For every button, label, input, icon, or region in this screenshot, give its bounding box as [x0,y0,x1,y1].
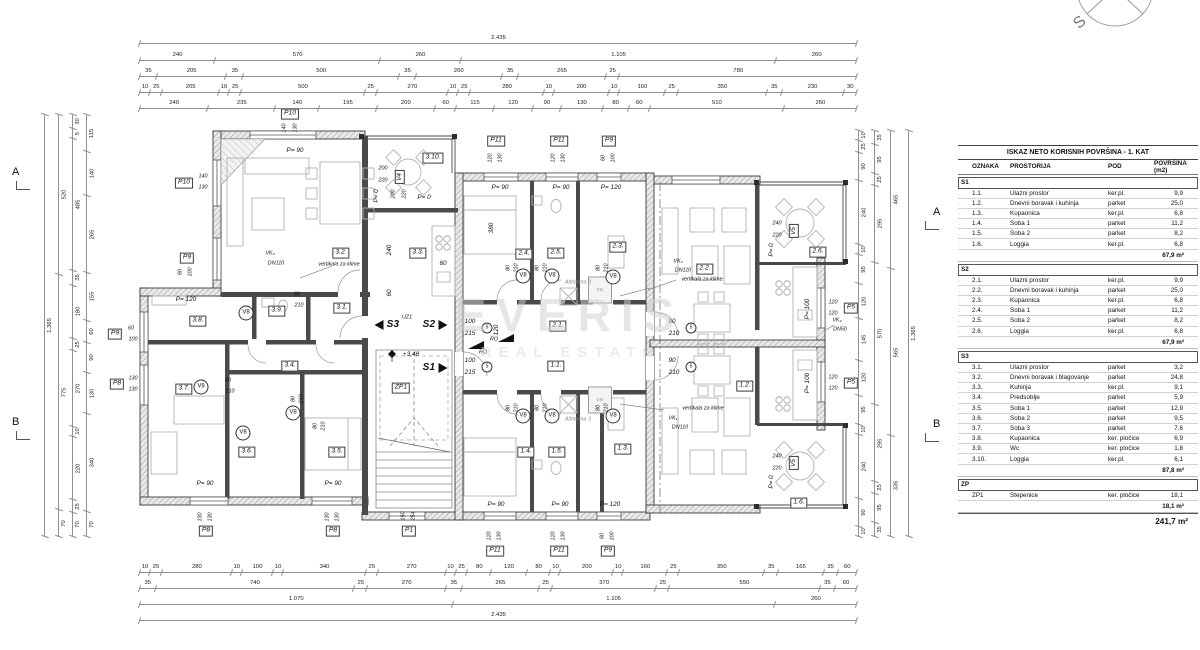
section-marker-b-right: B [933,418,940,430]
table-cell: 3.1. [972,364,1008,371]
table-row: .2.5.Soba 2parket8,2 [958,316,1198,326]
dim-80: 80 [596,265,601,271]
dim-80: 80 [291,396,296,402]
table-row: .3.1.Ulazni prostorparket3,2 [958,363,1198,373]
door-type-circle: 5 [482,323,493,334]
door-type-circle: 5 [686,362,697,373]
dn50-label: DN50 [833,327,847,332]
table-cell: . [959,445,970,452]
dim-140: 140 [199,174,208,179]
table-cell: parket [1108,220,1152,227]
table-cell: . [959,230,970,237]
dim-segment: 1.365 [44,115,57,537]
vent-marker-v8: V8 [194,380,209,395]
table-cell: parket [1108,364,1152,371]
dim-130: 130 [561,532,566,541]
floor-plan-sheet: S EVERIS REAL ESTATE 2.435 2405702601.10… [0,0,1200,650]
dim-segment: 130 [86,373,99,414]
dim-60: 60 [128,326,134,331]
dim-segment: 35 [767,80,782,93]
window-marker-p5-right1: P5 [844,303,858,314]
dim-segment: 220 [72,437,85,500]
table-cell: 1.2. [972,200,1008,207]
vent-marker-v8: V8 [239,306,254,321]
stair-mark-s2: S2 [423,320,436,330]
dim-60: 60 [439,261,446,267]
window-marker-p10-left: P10 [175,178,193,189]
table-cell: Loggia [1010,328,1106,335]
table-cell: . [959,384,970,391]
room-label-2-5: 2.5. [547,248,564,259]
table-cell: 7,6 [1154,425,1197,432]
dim-120: 120 [829,300,838,305]
dim-segment: 520 [58,115,71,275]
dim-segment: 80 [527,560,551,573]
door-dim-100: 100 [465,319,476,325]
table-cell: ker.pl. [1108,241,1152,248]
dim-80: 80 [535,405,540,411]
table-cell: 24,8 [1154,374,1197,381]
vertikala-label: vertikala za klime [318,262,359,267]
table-cell: Soba 1 [1010,220,1106,227]
table-cell: 11,2 [1154,307,1197,314]
room-label-1-2: 1.2. [736,381,753,392]
dim-254: 254 [411,512,416,521]
vertikala-label: vertikala za klime [681,277,722,282]
table-cell: 6,8 [1154,210,1197,217]
table-cell: parket [1108,287,1152,294]
dim-segment: 160 [619,80,665,93]
dim-120: 120 [551,154,556,163]
dim-segment: 200 [554,80,609,93]
table-cell: 9,5 [1154,415,1197,422]
dim-segment: 485 [72,139,85,271]
parapet-label: P= 100 [805,299,811,319]
dim-chain-right-1: 102590240109512014512095102409010 [858,131,871,537]
dim-segment: 1.365 [908,131,921,537]
table-cell: 3.10. [972,456,1008,463]
table-cell: . [959,328,970,335]
table-cell: Wc [1010,445,1106,452]
dim-200: 200 [379,166,388,171]
dim-segment: 140 [86,152,99,196]
dim-210: 210 [514,264,519,273]
table-row: .1.2.Dnevni boravak i kuhinjaparket25,0 [958,199,1198,209]
dim-segment: 25 [539,576,552,589]
dim-segment: 70 [72,513,85,537]
dim-segment: 780 [619,64,857,77]
table-cell: 2.3. [972,297,1008,304]
parapet-label: P= 120 [176,297,196,303]
dim-130: 130 [199,185,208,190]
dim-segment: 240 [858,435,871,500]
dim-segment: 95 [858,255,871,284]
room-label-3-8: 3.8. [189,316,206,327]
table-cell: 6,8 [1154,241,1197,248]
door-dim-100: 100 [465,358,476,364]
dim-segment: 740 [156,576,355,589]
table-row: .3.10.Loggiaker.pl.6,1 [958,454,1198,464]
dim-segment: 205 [157,64,227,77]
dim-80: 80 [535,265,540,271]
vk1-label: VK₁ [669,416,678,421]
dim-130: 130 [335,513,340,522]
table-cell: . [959,200,970,207]
dim-segment: 145 [858,319,871,360]
table-cell: 6,1 [1154,456,1197,463]
table-cell: 1.6. [972,241,1008,248]
table-cell: 3.5. [972,405,1008,412]
table-cell: 1.5. [972,230,1008,237]
table-cell: Loggia [1010,241,1106,248]
dim-130: 130 [498,154,503,163]
dim-segment: 35 [824,560,838,573]
dim-210: 210 [604,404,609,413]
table-subtotal: 87,8 m² [958,465,1198,477]
stair-arrow-icon [375,320,384,330]
dim-chain-top-4: 1025205102550025270102528010200101602535… [140,80,857,93]
dim-segment: 60 [435,96,456,109]
room-label-1-6: 1.6. [790,498,807,509]
vent-marker-v8: V8 [286,406,301,421]
dim-segment: 230 [782,80,844,93]
window-marker-p10-top: P10 [281,109,299,120]
table-cell: Kupaonica [1010,210,1106,217]
dim-segment: 165 [778,560,823,573]
table-total: 241,7 m² [958,513,1198,529]
table-cell: . [959,277,970,284]
door-dim-90: 90 [668,319,675,325]
dim-60: 60 [387,289,393,296]
dim-segment: 265 [462,576,540,589]
table-cell: ker. pločice [1108,435,1152,442]
table-cell: Dnevni boravak i kuhinja [1010,200,1106,207]
dim-segment: 340 [283,560,366,573]
dim-segment: 130 [561,96,602,109]
vertikala-label: vertikala za klime [682,406,723,411]
table-cell: 2.5. [972,317,1008,324]
dim-130: 130 [497,532,502,541]
table-row: .1.5.Soba 2parket8,2 [958,229,1198,239]
table-row: .2.1.Ulazni prostorker.pl.9,9 [958,276,1198,286]
dim-segment: 60 [838,560,857,573]
dim-segment: 265 [518,64,605,77]
table-cell: Soba 3 [1010,425,1106,432]
dim-segment: 35 [226,64,243,77]
room-label-1-4: 1.4. [517,447,534,458]
dim-220: 220 [402,190,407,199]
dim-segment: 240 [140,96,208,109]
dim-chain-bottom-2: 35740252703526525370255503560 [140,576,857,589]
dim-segment: 35 [874,523,887,537]
room-label-1-5: 1.5. [548,447,565,458]
table-cell: . [959,405,970,412]
window-marker-p8-bot2: P8 [326,526,340,537]
table-cell: parket [1108,200,1152,207]
dim-segment: 500 [241,80,364,93]
window-marker-p8-bot1: P8 [199,526,213,537]
section-marker-b-right-tick [925,433,939,442]
uz1-label: UZ1 [402,315,412,320]
dim-60: 60 [601,155,606,161]
door-type-circle: 5 [482,362,493,373]
parapet-label: P= 0 [417,195,430,201]
dim-120: 120 [829,311,838,316]
table-cell: 3.4. [972,394,1008,401]
dim-chain-right-2: 359525295570295259535 [874,131,887,537]
dim-100: 100 [610,532,615,541]
table-cell: 25,0 [1154,287,1197,294]
section-marker-b-left: B [12,416,19,428]
ro-label: RO [490,337,498,342]
dim-segment: 25 [366,560,378,573]
dim-220: 220 [773,233,782,238]
door-dim-215: 215 [465,370,476,376]
dim-chain-left-4: 115140265155609013034070 [86,115,99,537]
table-cell: . [959,364,970,371]
dim-380: 380 [489,223,495,234]
dim-segment: 570 [874,263,887,406]
dim-segment: 270 [367,576,446,589]
table-subtotal: 67,9 m² [958,250,1198,262]
table-cell: 3,2 [1154,364,1197,371]
dim-chain-left-2: 52077570 [58,115,71,537]
table-row: .1.3.Kupaonicaker.pl.6,8 [958,209,1198,219]
room-label-2-3: 2.3. [609,242,626,253]
window-marker-p9-top: P9 [602,136,616,147]
dim-chain-bottom-3: 1.0701.105260 [140,592,857,605]
table-subtotal: 67,9 m² [958,337,1198,349]
dim-120: 120 [829,386,838,391]
dim-segment: 70 [86,512,99,537]
table-cell: . [959,220,970,227]
table-row: .3.5.Soba 1parket12,9 [958,404,1198,414]
dim-segment: 90 [86,343,99,373]
parapet-label: P= 0 [769,475,775,488]
parapet-label: P= 90 [325,481,342,487]
table-cell: Loggia [1010,456,1106,463]
dim-120: 120 [488,154,493,163]
dim-210: 210 [299,395,304,404]
dim-segment: 35 [820,576,836,589]
dim-130: 130 [293,124,298,133]
table-cell: 18,1 [1154,492,1197,499]
table-cell: ZP1 [972,492,1008,499]
dim-segment: 120 [858,361,871,396]
window-marker-p11-bot2: P11 [550,546,568,557]
table-cell: Kuhinja [1010,384,1106,391]
window-marker-p9-bot: P9 [601,546,615,557]
vent-marker-v8: V8 [236,426,251,441]
table-cell: Soba 2 [1010,230,1106,237]
dim-segment: 10 [446,560,456,573]
dim-segment: 120 [494,96,533,109]
dim-segment: 295 [874,186,887,263]
table-row: .2.4.Soba 1parket11,2 [958,306,1198,316]
table-header-cell: PROSTORIJA [1010,163,1106,170]
level-label: +3,48 [403,352,419,358]
window-marker-p5-right2: P5 [844,378,858,389]
door-dim-215: 215 [465,331,476,337]
dim-segment: 30 [72,115,85,129]
table-cell: ker. pločice [1108,445,1152,452]
table-cell: ker.pl. [1108,277,1152,284]
dim-segment: 35 [446,576,462,589]
dim-segment: 25 [665,80,677,93]
table-cell: ker.pl. [1108,190,1152,197]
room-label-1-1: 1.1. [547,361,564,372]
dim-segment: 95 [874,494,887,523]
dim-chain-bottom-4: 2.435 [140,608,857,621]
dn110-label: DN110 [268,261,284,266]
dim-segment: 500 [243,64,399,77]
table-cell: ker.pl. [1108,297,1152,304]
dim-segment: 25 [365,80,377,93]
table-cell: 2.6. [972,328,1008,335]
table-cell: 9,9 [1154,190,1197,197]
dim-segment: 205 [162,80,218,93]
vk3-label: VK₃ [265,251,274,256]
dim-210: 210 [604,264,609,273]
dim-segment: 195 [319,96,376,109]
dim-segment: 260 [784,96,857,109]
table-cell: 6,8 [1154,328,1197,335]
table-cell: parket [1108,405,1152,412]
table-cell: 8,2 [1154,317,1197,324]
table-section-band: S1 [958,177,1198,189]
dim-segment: 200 [377,96,436,109]
dim-segment: 25 [874,482,887,494]
dim-chain-top-5: 24023514019520060115120901308060510260 [140,96,857,109]
table-cell: 12,9 [1154,405,1197,412]
dim-120: 120 [829,375,838,380]
table-row: .2.2.Dnevni boravak i kuhinjaparket25,0 [958,286,1198,296]
table-section-band: S2 [958,264,1198,276]
table-cell: parket [1108,230,1152,237]
table-cell: 11,2 [1154,220,1197,227]
table-cell: 2.1. [972,277,1008,284]
dim-120: 120 [551,532,556,541]
table-cell: ker.pl. [1108,384,1152,391]
window-marker-p9-left1: P9 [180,253,194,264]
dim-chain-right-4: 1.365 [908,131,921,537]
table-cell: Ulazni prostor [1010,190,1106,197]
table-cell: parket [1108,317,1152,324]
room-label-2-1: 2.1. [549,321,566,332]
table-row: .ZP1Stepeniceker. pločice18,1 [958,491,1198,501]
room-label-3-2: 3.2. [332,248,349,259]
table-cell: 1,8 [1154,445,1197,452]
dim-100: 100 [129,337,138,342]
parapet-label: P= 0 [769,243,775,256]
table-cell: 3.9. [972,445,1008,452]
table-cell: 3.2. [972,374,1008,381]
dim-segment: 80 [467,560,491,573]
table-cell: Dnevni boravak i kuhinja [1010,287,1106,294]
dim-130: 130 [561,154,566,163]
table-header-cell: OZNAKA [972,163,1008,170]
dim-segment: 100 [242,560,273,573]
dim-segment: 95 [874,145,887,174]
dim-segment: 265 [86,196,99,274]
dim-210: 210 [543,264,548,273]
dim-segment: 95 [858,396,871,425]
table-cell: ker.pl. [1108,456,1152,463]
table-cell: parket [1108,425,1152,432]
table-cell: . [959,374,970,381]
dim-segment: 30 [844,80,857,93]
room-label-3-10: 3.10. [422,153,443,164]
table-row: .2.6.Loggiaker.pl.6,8 [958,327,1198,337]
door-dim-210: 210 [669,331,680,337]
dim-80: 80 [294,292,300,297]
dim-chain-top-2: 2405702601.105260 [140,48,857,61]
north-compass-icon [1055,0,1185,55]
stair-mark-s3: S3 [387,320,400,330]
dim-segment: 235 [208,96,275,109]
table-cell: 2.4. [972,307,1008,314]
dim-segment: 35 [140,576,156,589]
table-cell: Predsoblje [1010,394,1106,401]
dim-segment: 280 [470,80,543,93]
table-cell: parket [1108,307,1152,314]
dim-210: 210 [514,404,519,413]
table-cell: 3.7. [972,425,1008,432]
dim-segment: 35 [874,131,887,145]
dim-segment: 115 [86,115,99,152]
dim-130: 130 [208,513,213,522]
dim-chain-left-1: 1.365 [44,115,57,537]
dim-240: 240 [773,221,782,226]
dim-segment: 120 [858,284,871,319]
dim-segment: 270 [377,80,448,93]
table-row: .3.8.Kupaonicaker. pločice6,9 [958,434,1198,444]
table-cell: 3.8. [972,435,1008,442]
table-cell: Ulazni prostor [1010,277,1106,284]
room-label-2-4: 2.4. [515,249,532,260]
stair-arrow-icon [439,320,448,330]
table-header-cell: POD [1108,163,1152,170]
table-cell: . [959,492,970,499]
dim-140: 140 [282,124,287,133]
table-cell: Soba 1 [1010,307,1106,314]
dim-segment: 2.435 [140,608,857,621]
table-header-row: OZNAKAPROSTORIJAPODPOVRŠINA (m2) [958,160,1198,175]
window-marker-p11-top2: P11 [550,136,568,147]
dim-220: 220 [773,466,782,471]
parapet-label: P= 120 [601,185,621,191]
table-row: .1.6.Loggiaker.pl.6,8 [958,239,1198,249]
dn110-label: DN110 [672,425,688,430]
dim-210: 210 [295,303,304,308]
room-label-2-2: 2.2. [696,264,713,275]
dim-120: 120 [487,532,492,541]
dim-segment: 350 [679,560,764,573]
dim-segment: 115 [456,96,493,109]
altherma-label: Altherma 3 [565,417,591,422]
dim-80: 80 [313,423,318,429]
dim-210: 210 [543,404,548,413]
window-marker-p11-top1: P11 [487,136,505,147]
table-row: .3.4.Predsobljeparket5,9 [958,393,1198,403]
parapet-label: P= 120 [600,502,620,508]
dim-segment: 5 [72,129,85,139]
dim-segment: 25 [858,141,871,153]
dim-240: 240 [387,245,393,256]
dim-80: 80 [225,378,231,383]
dim-segment: 465 [890,131,903,269]
dim-80: 80 [506,405,511,411]
